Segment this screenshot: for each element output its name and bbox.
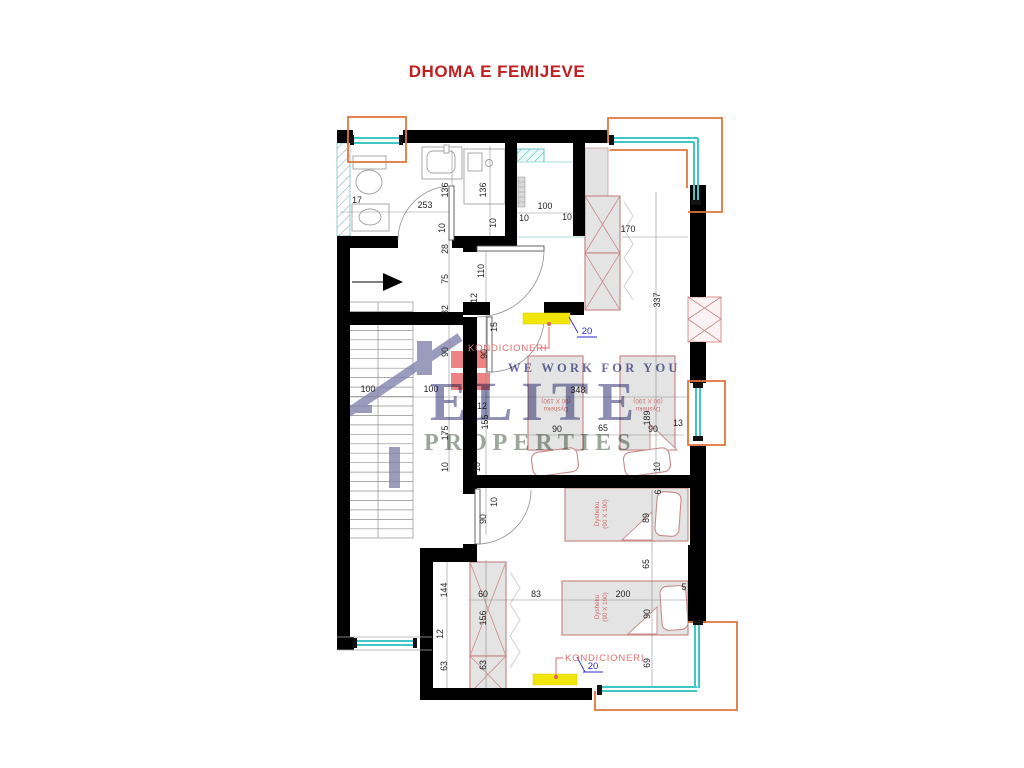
window-top-left [348,117,406,162]
dimension-label: 10 [652,462,662,472]
window-right [688,381,725,445]
dimension-label: 60 [478,589,488,599]
dimension-label: 90 [642,609,652,619]
dimension-label: 170 [621,224,636,234]
dimension-label: 6 [653,489,663,494]
ac-value-top: 20 [582,326,593,337]
dimension-label: 136 [478,183,488,198]
dimension-label: 17 [352,195,362,205]
dimension-label: 10 [472,462,482,472]
logo-post [389,447,400,488]
open-door-zigzag [510,572,520,668]
dimension-label: 90 [478,514,488,524]
dimension-label: 12 [477,401,487,411]
bed-size-label: Dysheku(90 X 190) [594,499,609,528]
floor-plan-page: DHOMA E FEMIJEVE [0,0,1024,768]
dimension-label: 63 [439,661,449,671]
pilaster [585,148,608,196]
dimension-label: 136 [440,183,450,198]
dimension-label: 200 [616,589,631,599]
dimension-label: 12 [435,629,445,639]
dimension-label: 90 [479,349,489,359]
wall-shaft [688,297,721,342]
dimension-label: 10 [440,462,450,472]
dimension-label: 337 [652,293,662,308]
open-door-zigzag [624,202,633,300]
dimension-label: 100 [538,201,553,211]
ac-label-bottom: KONDICIONERI [565,653,644,664]
dimension-label: 28 [440,244,450,254]
dimension-label: 155 [480,415,490,430]
dimension-label: 32 [440,305,450,315]
dimension-label: 100 [424,384,439,394]
stair-direction-arrow-icon [383,273,403,291]
bed-size-label: Dysheku(90 X 190) [633,397,662,412]
sink [422,145,462,179]
dimension-label: 10 [489,497,499,507]
dimension-label: 156 [478,611,488,626]
bed-middle-left [528,356,583,477]
dimension-label: 13 [673,418,683,428]
dimension-label: 175 [440,426,450,441]
dimension-label: 75 [440,274,450,284]
dimension-label: 10 [562,212,572,222]
bed-bottom-upper [565,488,688,541]
bidet [352,204,389,231]
dimension-label: 348 [571,385,586,395]
dimension-label: 12 [469,293,479,303]
wardrobe-bottom [470,562,520,693]
dimension-label: 65 [598,423,608,433]
dimension-label: 10 [488,218,498,228]
ac-unit-top [523,313,570,324]
dimension-label: 15 [489,322,499,332]
dimension-label: 90 [552,424,562,434]
logo-chimney [417,341,432,375]
dimension-label: 89 [641,513,651,523]
dimension-label: 90 [440,347,450,357]
dimension-label: 5 [682,582,687,592]
floor-plan-drawing: KONDICIONERI 20 KONDICIONERI 20 17253136… [0,0,1024,768]
dimension-label: 10 [437,223,447,233]
bed-size-label: Dysheku(90 X 190) [541,397,570,412]
dimension-label: 10 [519,213,529,223]
dimension-label: 253 [418,200,433,210]
radiator [518,177,525,207]
dimension-label: 144 [439,583,449,598]
ac-value-bottom: 20 [588,661,599,672]
dimension-label: 83 [531,589,541,599]
bed-size-label: Dysheku(90 X 190) [594,592,609,621]
dimension-label: 100 [361,384,376,394]
dimension-label: 65 [641,559,651,569]
dimension-label: 63 [478,660,488,670]
shaft-hatch [517,149,544,162]
dimension-label: 69 [642,658,652,668]
dimension-label: 110 [476,264,486,278]
